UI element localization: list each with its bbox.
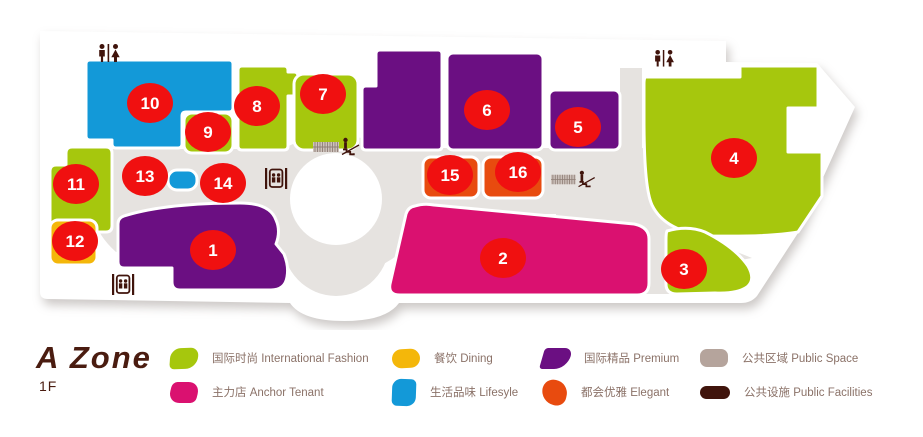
area-marker-8[interactable]: 8 xyxy=(234,86,280,126)
area-marker-5[interactable]: 5 xyxy=(555,107,601,147)
marker-label: 9 xyxy=(203,124,212,141)
marker-label: 8 xyxy=(252,98,261,115)
area-marker-6[interactable]: 6 xyxy=(464,90,510,130)
marker-label: 6 xyxy=(482,102,491,119)
kiosk-b-lifestyle[interactable] xyxy=(168,170,197,190)
marker-label: 10 xyxy=(141,95,160,112)
atrium-void xyxy=(290,153,382,245)
legend-item-premium: 国际精品 Premium xyxy=(542,348,700,369)
legend-label: 都会优雅 Elegant xyxy=(581,384,669,400)
legend-item-dining: 餐饮 Dining xyxy=(392,349,542,368)
marker-label: 15 xyxy=(441,167,460,184)
legend-item-public-facilities: 公共设施 Public Facilities xyxy=(700,384,890,400)
area-marker-11[interactable]: 11 xyxy=(53,164,99,204)
legend-label: 餐饮 Dining xyxy=(434,350,493,366)
area-marker-16[interactable]: 16 xyxy=(495,152,541,192)
area-marker-10[interactable]: 10 xyxy=(127,83,173,123)
marker-label: 7 xyxy=(318,86,327,103)
legend-label: 国际精品 Premium xyxy=(584,350,679,366)
area-marker-14[interactable]: 14 xyxy=(200,163,246,203)
legend-item-elegant: 都会优雅 Elegant xyxy=(542,380,700,405)
legend-swatch-elegant xyxy=(540,377,570,407)
legend: 国际时尚 International Fashion 餐饮 Dining 国际精… xyxy=(170,341,890,409)
zone-title: A Zone xyxy=(36,340,152,376)
area-marker-1[interactable]: 1 xyxy=(190,230,236,270)
legend-label: 公共区域 Public Space xyxy=(742,350,858,366)
legend-label: 国际时尚 International Fashion xyxy=(212,350,369,366)
legend-swatch-public-space xyxy=(700,349,728,367)
area-marker-9[interactable]: 9 xyxy=(185,112,231,152)
area-marker-4[interactable]: 4 xyxy=(711,138,757,178)
marker-label: 3 xyxy=(679,261,688,278)
legend-swatch-international-fashion xyxy=(169,347,199,369)
marker-label: 11 xyxy=(67,176,85,193)
legend-item-international-fashion: 国际时尚 International Fashion xyxy=(170,348,392,369)
marker-label: 13 xyxy=(136,168,155,185)
legend-swatch-lifestyle xyxy=(392,378,417,406)
marker-label: 16 xyxy=(509,164,528,181)
mall-floor-map-page: 1 2 3 4 5 6 7 8 9 10 11 12 13 14 15 16 A… xyxy=(0,0,923,437)
legend-label: 公共设施 Public Facilities xyxy=(744,384,872,400)
legend-swatch-dining xyxy=(392,348,421,368)
area-marker-13[interactable]: 13 xyxy=(122,156,168,196)
floor-label: 1F xyxy=(39,378,57,394)
legend-swatch-premium xyxy=(539,348,573,369)
marker-label: 14 xyxy=(214,175,233,192)
legend-label: 生活品味 Lifesyle xyxy=(430,384,518,400)
legend-label: 主力店 Anchor Tenant xyxy=(212,384,324,400)
area-marker-15[interactable]: 15 xyxy=(427,155,473,195)
legend-swatch-public-facilities xyxy=(700,386,730,399)
legend-swatch-anchor-tenant xyxy=(167,382,200,403)
marker-label: 2 xyxy=(498,250,507,267)
area-marker-12[interactable]: 12 xyxy=(52,221,98,261)
marker-label: 5 xyxy=(573,119,582,136)
area-marker-2[interactable]: 2 xyxy=(480,238,526,278)
marker-label: 12 xyxy=(66,233,85,250)
marker-label: 4 xyxy=(729,150,738,167)
area-marker-3[interactable]: 3 xyxy=(661,249,707,289)
legend-item-lifestyle: 生活品味 Lifesyle xyxy=(392,379,542,406)
legend-item-anchor-tenant: 主力店 Anchor Tenant xyxy=(170,382,392,403)
area-marker-7[interactable]: 7 xyxy=(300,74,346,114)
legend-item-public-space: 公共区域 Public Space xyxy=(700,349,890,367)
marker-label: 1 xyxy=(208,242,217,259)
